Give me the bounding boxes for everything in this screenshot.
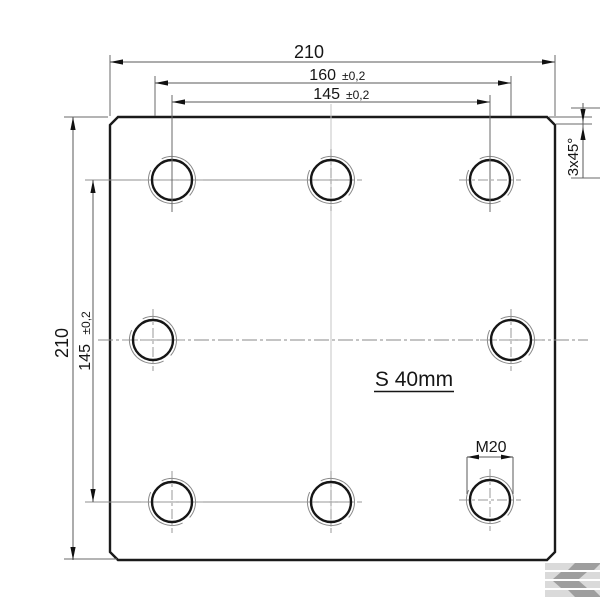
dim-chamfer: 3x45° [549, 103, 600, 178]
arrow-right-icon [477, 99, 490, 104]
hole-bottom-right [459, 469, 521, 531]
dim-mid-hole-spacing: 160 ±0,2 [155, 67, 511, 86]
dim-vertical-spacing-tol: ±0,2 [79, 311, 93, 335]
dim-overall-height: 210 [52, 117, 76, 560]
arrow-left-icon [110, 59, 123, 64]
thickness-callout: S 40mm [374, 368, 454, 392]
arrow-right-icon [498, 80, 511, 85]
dim-outer-spacing-tolerance: ±0,2 [346, 88, 370, 102]
dim-thread-m20: M20 [467, 439, 513, 494]
arrow-up-icon [70, 117, 75, 130]
arrow-left-icon [172, 99, 185, 104]
dim-vertical-spacing-label: 145 ±0,2 [77, 311, 94, 371]
dim-overall-height-label: 210 [52, 328, 72, 358]
dim-vertical-spacing-value: 145 [77, 344, 94, 371]
dim-mid-spacing-tolerance: ±0,2 [342, 69, 366, 83]
chamfer-label: 3x45° [565, 138, 582, 177]
dim-overall-width-label: 210 [294, 42, 324, 62]
extension-lines [64, 55, 555, 559]
technical-drawing: 210 160 ±0,2 145 ±0,2 210 145 ±0,2 [0, 0, 600, 600]
dim-overall-width: 210 [110, 42, 555, 65]
thread-size-label: M20 [475, 439, 506, 456]
drawing-canvas: 210 160 ±0,2 145 ±0,2 210 145 ±0,2 [0, 0, 600, 600]
kramp-k-logo-icon [545, 563, 600, 597]
arrow-right-icon [542, 59, 555, 64]
dim-outer-spacing-label: 145 [313, 86, 340, 103]
dim-vertical-hole-spacing: 145 ±0,2 [77, 180, 96, 502]
thickness-label: S 40mm [375, 368, 453, 391]
arrow-left-icon [155, 80, 168, 85]
arrow-down-icon [90, 489, 95, 502]
arrow-down-icon [580, 109, 585, 122]
dim-outer-hole-spacing: 145 ±0,2 [172, 86, 490, 105]
holes [122, 149, 542, 533]
arrow-up-icon [90, 180, 95, 193]
dim-mid-spacing-label: 160 [309, 67, 336, 84]
arrow-down-icon [70, 547, 75, 560]
